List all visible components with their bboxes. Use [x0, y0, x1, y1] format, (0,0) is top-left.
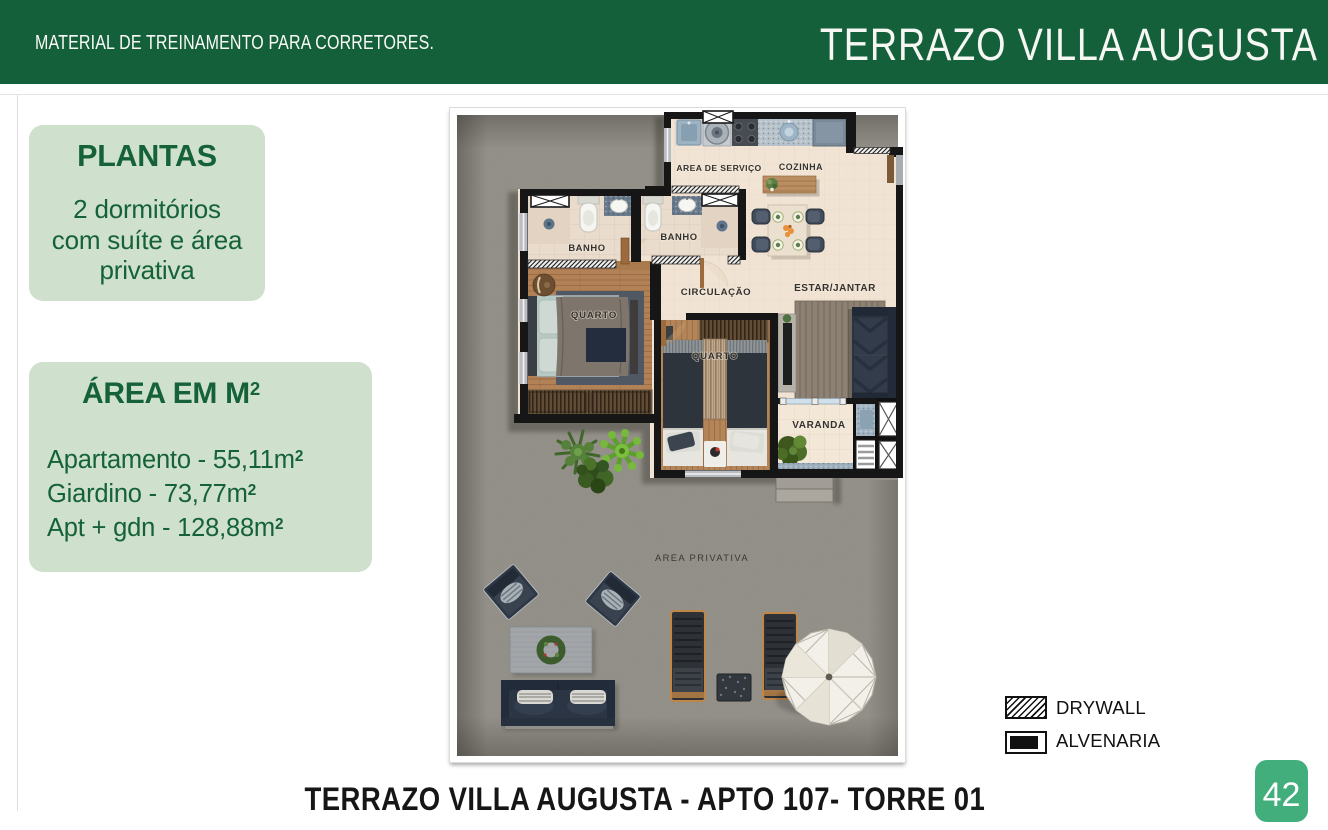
svg-text:COZINHA: COZINHA	[779, 162, 823, 172]
svg-text:AREA DE SERVIÇO: AREA DE SERVIÇO	[676, 163, 761, 173]
svg-text:VARANDA: VARANDA	[792, 420, 845, 431]
svg-text:QUARTO: QUARTO	[571, 310, 617, 321]
svg-text:AREA PRIVATIVA: AREA PRIVATIVA	[655, 552, 749, 563]
svg-text:BANHO: BANHO	[568, 242, 605, 253]
svg-text:ESTAR/JANTAR: ESTAR/JANTAR	[794, 283, 876, 294]
svg-text:QUARTO: QUARTO	[692, 351, 738, 362]
svg-text:BANHO: BANHO	[660, 231, 697, 242]
svg-text:CIRCULAÇÃO: CIRCULAÇÃO	[681, 287, 752, 298]
